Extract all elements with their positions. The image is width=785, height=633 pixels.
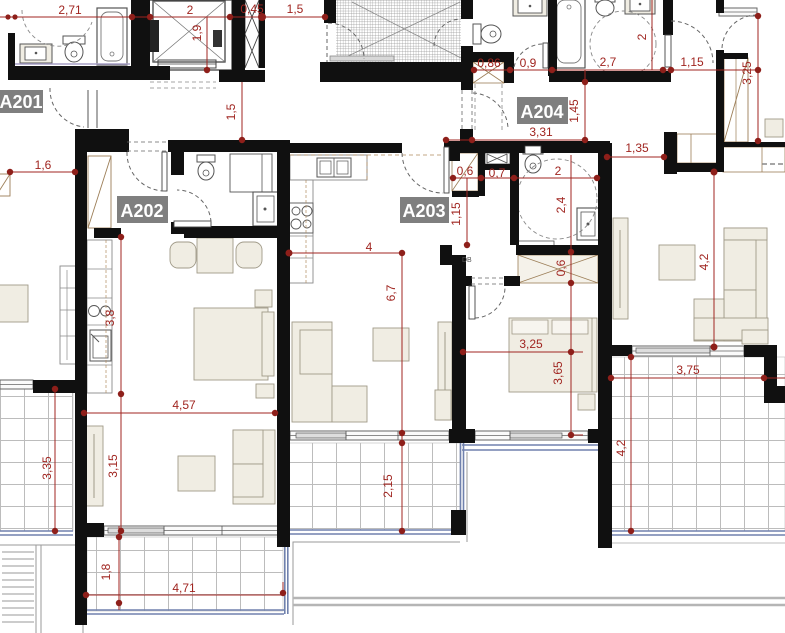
svg-text:1,15: 1,15 (680, 55, 704, 69)
svg-text:2,7: 2,7 (600, 55, 617, 69)
svg-text:1,35: 1,35 (625, 141, 649, 155)
svg-text:0,6: 0,6 (457, 164, 474, 178)
svg-text:0,86: 0,86 (477, 56, 501, 70)
svg-text:3,8: 3,8 (103, 309, 117, 326)
svg-text:1,8: 1,8 (99, 563, 113, 580)
svg-text:2,4: 2,4 (554, 196, 568, 213)
svg-text:3,35: 3,35 (40, 456, 54, 480)
svg-text:3,15: 3,15 (106, 454, 120, 478)
svg-text:0,7: 0,7 (489, 166, 506, 180)
svg-text:3,25: 3,25 (519, 337, 543, 351)
svg-text:1,5: 1,5 (224, 103, 238, 120)
svg-text:A202: A202 (120, 201, 163, 221)
svg-text:3,25: 3,25 (740, 61, 754, 85)
svg-text:2: 2 (187, 3, 194, 17)
svg-text:2,71: 2,71 (58, 3, 82, 17)
svg-text:1,5: 1,5 (287, 2, 304, 16)
svg-text:1,6: 1,6 (35, 158, 52, 172)
svg-text:4,57: 4,57 (172, 398, 196, 412)
svg-text:A203: A203 (402, 201, 445, 221)
svg-text:4,2: 4,2 (697, 253, 711, 270)
svg-text:2,15: 2,15 (381, 474, 395, 498)
svg-text:1,15: 1,15 (449, 202, 463, 226)
svg-text:4,2: 4,2 (614, 439, 628, 456)
svg-text:0,9: 0,9 (520, 56, 537, 70)
svg-text:3,65: 3,65 (551, 361, 565, 385)
svg-text:0,45: 0,45 (240, 2, 264, 16)
svg-text:2: 2 (555, 164, 562, 178)
svg-text:2: 2 (635, 33, 649, 40)
svg-text:DB: DB (462, 257, 472, 264)
svg-text:0,6: 0,6 (554, 259, 568, 276)
svg-text:4: 4 (366, 240, 373, 254)
svg-text:6,7: 6,7 (384, 284, 398, 301)
svg-text:1,45: 1,45 (567, 99, 581, 123)
svg-text:A204: A204 (520, 102, 563, 122)
svg-text:1,9: 1,9 (190, 24, 204, 41)
svg-text:3,31: 3,31 (529, 125, 553, 139)
svg-text:A201: A201 (0, 92, 43, 112)
svg-text:4,71: 4,71 (172, 581, 196, 595)
svg-text:3,75: 3,75 (676, 363, 700, 377)
